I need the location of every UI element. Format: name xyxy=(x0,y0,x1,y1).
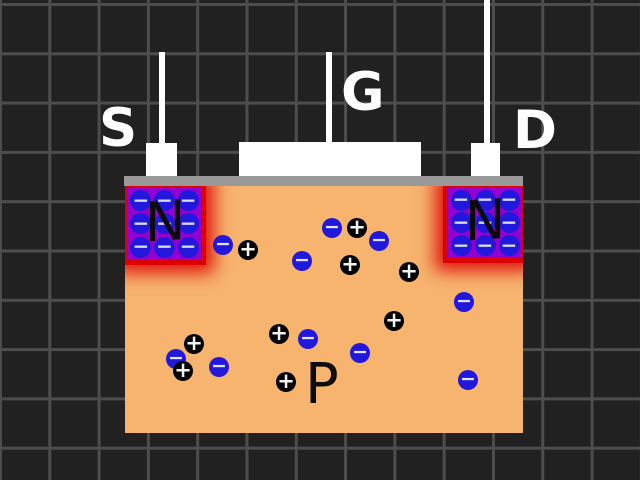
electron: − xyxy=(322,218,342,238)
hole: + xyxy=(276,372,296,392)
hole: + xyxy=(399,262,419,282)
electron: − xyxy=(298,329,318,349)
source-contact xyxy=(146,143,177,177)
electron: − xyxy=(213,235,233,255)
oxide-layer xyxy=(124,176,523,186)
source-label: S xyxy=(99,102,137,155)
source-wire xyxy=(159,52,165,146)
drain-contact xyxy=(471,143,500,176)
mosfet-diagram: S G D −−−−−−−−− N −−−−−−−−− N −−−−−−−−−−… xyxy=(0,0,640,480)
hole: + xyxy=(184,334,204,354)
electron: − xyxy=(454,292,474,312)
gate-wire xyxy=(326,52,332,144)
hole: + xyxy=(173,361,193,381)
p-substrate: −−−−−−−−− N −−−−−−−−− N −−−−−−−−−−++++++… xyxy=(125,186,523,433)
hole: + xyxy=(347,218,367,238)
drain-label: D xyxy=(513,104,557,157)
hole: + xyxy=(269,324,289,344)
drain-wire xyxy=(484,0,490,145)
hole: + xyxy=(238,240,258,260)
electron: − xyxy=(369,231,389,251)
electron: − xyxy=(209,357,229,377)
electron: − xyxy=(350,343,370,363)
electron: − xyxy=(292,251,312,271)
substrate-label: P xyxy=(305,357,339,413)
electron: − xyxy=(458,370,478,390)
gate-label: G xyxy=(341,66,385,119)
hole: + xyxy=(340,255,360,275)
gate-electrode xyxy=(239,142,421,177)
hole: + xyxy=(384,311,404,331)
